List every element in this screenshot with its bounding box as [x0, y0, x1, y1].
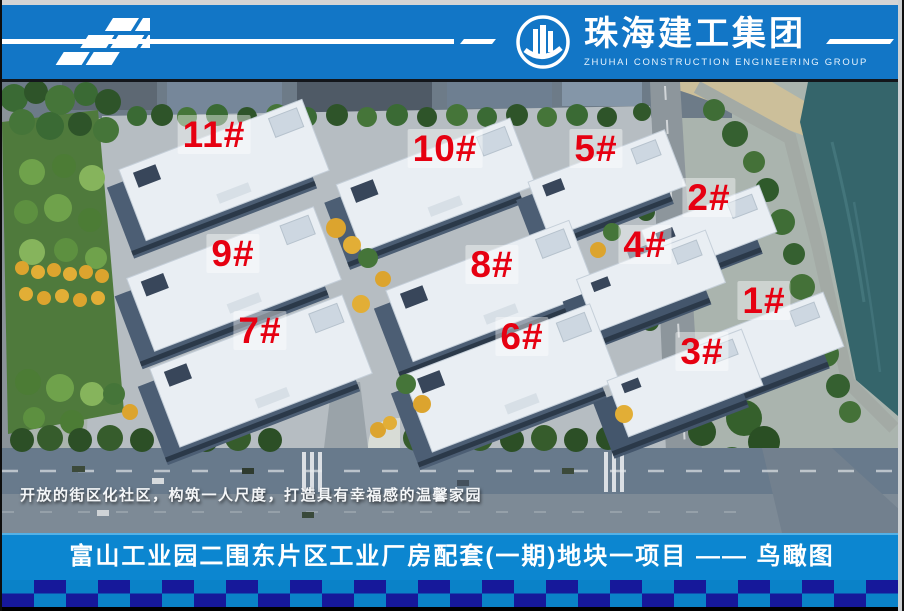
company-name-en: ZHUHAI CONSTRUCTION ENGINEERING GROUP — [584, 57, 868, 68]
bottom-edge-strip — [2, 607, 902, 611]
building-label-6: 6# — [495, 317, 548, 356]
building-label-1: 1# — [737, 281, 790, 320]
building-label-5: 5# — [569, 129, 622, 168]
building-label-3: 3# — [675, 332, 728, 371]
footer-checker-strip — [2, 580, 902, 607]
checker-flag-pattern-icon — [40, 10, 150, 74]
render-caption: 开放的街区化社区，构筑一人尺度，打造具有幸福感的温馨家园 — [20, 484, 482, 505]
footer-title: 富山工业园二围东片区工业厂房配套(一期)地块一项目 —— 鸟瞰图 — [2, 533, 902, 580]
building-label-4: 4# — [618, 225, 671, 264]
building-label-7: 7# — [233, 311, 286, 350]
building-label-2: 2# — [682, 178, 735, 217]
project-board: 珠海建工集团 ZHUHAI CONSTRUCTION ENGINEERING G… — [0, 0, 904, 611]
building-label-9: 9# — [206, 234, 259, 273]
right-edge-strip — [898, 0, 902, 611]
header-dash-decor — [460, 39, 496, 44]
company-logo-icon — [514, 13, 572, 71]
building-label-11: 11# — [178, 115, 251, 154]
header-bar: 珠海建工集团 ZHUHAI CONSTRUCTION ENGINEERING G… — [2, 5, 902, 79]
aerial-render-area: 1# 2# 3# 4# 5# 6# 7# 8# 9# 10# 11# 开放的街区… — [2, 82, 902, 533]
building-label-10: 10# — [408, 129, 483, 168]
building-label-8: 8# — [465, 245, 518, 284]
company-name: 珠海建工集团 — [584, 15, 868, 54]
header-dash-right-decor — [826, 39, 894, 44]
